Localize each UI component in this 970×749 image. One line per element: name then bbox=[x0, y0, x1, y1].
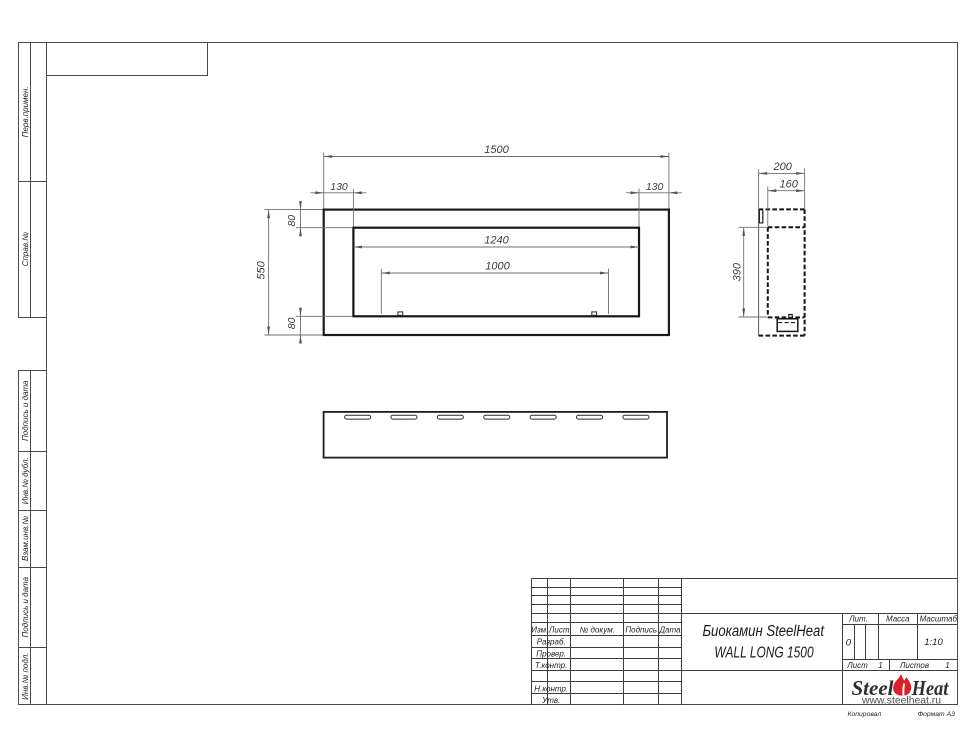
svg-text:Масса: Масса bbox=[886, 615, 910, 624]
svg-text:№ докум.: № докум. bbox=[580, 625, 615, 634]
svg-text:Т.контр.: Т.контр. bbox=[535, 661, 567, 670]
svg-text:Утв.: Утв. bbox=[541, 696, 560, 705]
svg-text:390: 390 bbox=[732, 262, 744, 281]
svg-text:Подпись и дата: Подпись и дата bbox=[21, 380, 30, 441]
svg-text:80: 80 bbox=[286, 215, 298, 227]
svg-text:www.steelheat.ru: www.steelheat.ru bbox=[861, 694, 941, 706]
svg-text:130: 130 bbox=[646, 181, 664, 193]
svg-text:1: 1 bbox=[945, 661, 949, 670]
svg-text:1: 1 bbox=[878, 661, 882, 670]
svg-text:Лист: Лист bbox=[548, 625, 570, 634]
svg-text:130: 130 bbox=[330, 181, 348, 193]
svg-text:1000: 1000 bbox=[485, 261, 510, 273]
svg-text:Инв.№ подл.: Инв.№ подл. bbox=[21, 652, 30, 699]
svg-text:Лит.: Лит. bbox=[848, 615, 868, 624]
svg-text:Копировал: Копировал bbox=[847, 711, 881, 718]
svg-text:Масштаб: Масштаб bbox=[920, 615, 958, 624]
svg-text:0: 0 bbox=[846, 638, 852, 649]
svg-text:Справ.№: Справ.№ bbox=[21, 232, 30, 266]
svg-text:160: 160 bbox=[780, 178, 799, 190]
svg-text:Листов: Листов bbox=[899, 661, 929, 670]
svg-text:80: 80 bbox=[286, 317, 298, 329]
svg-text:Провер.: Провер. bbox=[536, 649, 566, 658]
svg-text:Н.контр.: Н.контр. bbox=[534, 684, 568, 693]
svg-text:WALL LONG 1500: WALL LONG 1500 bbox=[714, 645, 813, 662]
svg-text:1500: 1500 bbox=[484, 144, 509, 156]
svg-text:1240: 1240 bbox=[484, 235, 509, 247]
svg-text:Подпись и дата: Подпись и дата bbox=[21, 576, 30, 637]
svg-text:550: 550 bbox=[255, 260, 267, 279]
svg-text:Изм.: Изм. bbox=[531, 625, 548, 634]
svg-text:Подпись: Подпись bbox=[625, 625, 657, 634]
svg-text:Разраб.: Разраб. bbox=[537, 638, 566, 647]
svg-text:Инв.№ дубл.: Инв.№ дубл. bbox=[21, 457, 30, 504]
svg-text:Формат А3: Формат А3 bbox=[918, 711, 955, 718]
svg-text:Биокамин SteelHeat: Биокамин SteelHeat bbox=[703, 623, 825, 640]
svg-text:200: 200 bbox=[773, 161, 793, 173]
svg-text:Дата: Дата bbox=[658, 625, 681, 634]
svg-text:Взам.инв.№: Взам.инв.№ bbox=[21, 516, 30, 561]
svg-text:Перв.примен.: Перв.примен. bbox=[21, 86, 30, 137]
svg-text:1:10: 1:10 bbox=[924, 637, 943, 648]
svg-text:Лист: Лист bbox=[846, 661, 868, 670]
